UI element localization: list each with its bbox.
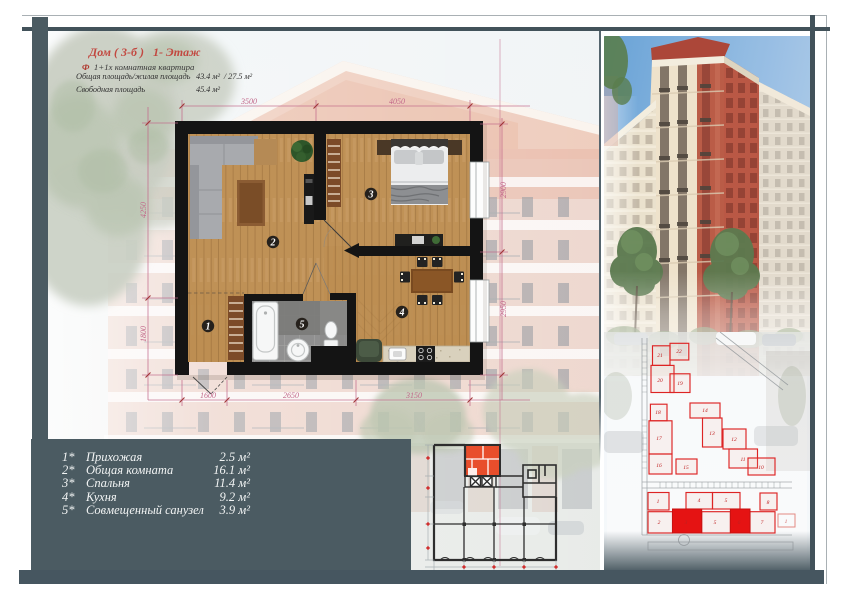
svg-text:8: 8	[767, 500, 770, 506]
svg-text:18: 18	[655, 410, 661, 416]
svg-text:16: 16	[656, 463, 662, 469]
svg-text:4: 4	[698, 497, 701, 504]
svg-text:2650: 2650	[283, 391, 299, 400]
svg-text:3500: 3500	[240, 97, 257, 106]
svg-text:20: 20	[657, 378, 663, 384]
svg-text:2: 2	[658, 520, 661, 526]
svg-text:13: 13	[709, 431, 715, 437]
svg-text:15: 15	[683, 465, 689, 471]
svg-text:2950: 2950	[499, 301, 508, 317]
svg-text:1: 1	[785, 519, 788, 525]
svg-text:14: 14	[702, 407, 708, 414]
svg-text:4: 4	[399, 308, 405, 319]
svg-text:2900: 2900	[499, 182, 508, 198]
svg-text:1800: 1800	[139, 326, 148, 342]
svg-text:17: 17	[656, 436, 662, 442]
svg-text:21: 21	[657, 353, 663, 359]
svg-text:3: 3	[368, 190, 374, 201]
svg-text:4050: 4050	[389, 97, 405, 106]
svg-text:5: 5	[725, 498, 728, 504]
svg-text:5: 5	[300, 320, 305, 331]
svg-text:1: 1	[657, 499, 660, 505]
svg-text:12: 12	[731, 437, 737, 443]
svg-text:5: 5	[714, 520, 717, 526]
svg-text:1: 1	[206, 322, 211, 333]
svg-text:11: 11	[740, 457, 745, 463]
svg-text:3: 3	[684, 520, 688, 526]
svg-text:10: 10	[758, 465, 764, 471]
svg-text:6: 6	[738, 520, 741, 526]
svg-text:3150: 3150	[405, 391, 422, 400]
svg-text:1600: 1600	[200, 391, 216, 400]
svg-text:7: 7	[761, 520, 764, 526]
svg-text:19: 19	[677, 381, 683, 387]
svg-text:22: 22	[676, 349, 682, 355]
svg-text:2: 2	[270, 238, 276, 249]
svg-text:4250: 4250	[139, 202, 148, 218]
